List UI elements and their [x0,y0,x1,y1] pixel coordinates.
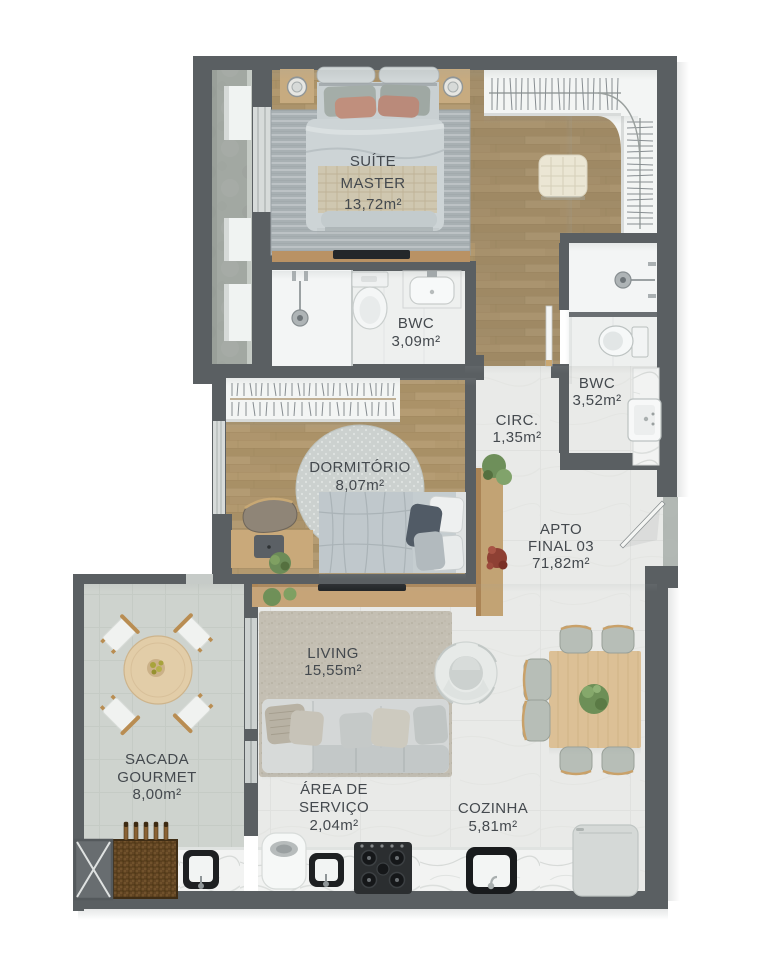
svg-text:ÁREA DE: ÁREA DE [300,781,368,798]
svg-text:SERVIÇO: SERVIÇO [299,799,369,816]
svg-text:1,35m²: 1,35m² [492,429,541,446]
svg-text:3,52m²: 3,52m² [572,392,621,409]
svg-text:5,81m²: 5,81m² [468,818,517,835]
svg-text:8,07m²: 8,07m² [335,477,384,494]
svg-text:APTO: APTO [540,521,582,538]
svg-text:CIRC.: CIRC. [496,412,539,429]
svg-text:FINAL 03: FINAL 03 [528,538,594,555]
svg-text:13,72m²: 13,72m² [344,196,402,213]
svg-text:MASTER: MASTER [341,175,406,192]
svg-text:15,55m²: 15,55m² [304,662,362,679]
svg-text:3,09m²: 3,09m² [391,333,440,350]
svg-text:BWC: BWC [398,315,434,332]
svg-text:DORMITÓRIO: DORMITÓRIO [309,459,411,476]
svg-text:SUÍTE: SUÍTE [350,153,396,170]
svg-text:GOURMET: GOURMET [117,769,196,786]
svg-text:71,82m²: 71,82m² [532,555,590,572]
svg-text:BWC: BWC [579,375,615,392]
svg-text:8,00m²: 8,00m² [132,786,181,803]
svg-text:LIVING: LIVING [307,645,359,662]
svg-text:2,04m²: 2,04m² [309,817,358,834]
svg-text:SACADA: SACADA [125,751,189,768]
svg-text:COZINHA: COZINHA [458,800,528,817]
